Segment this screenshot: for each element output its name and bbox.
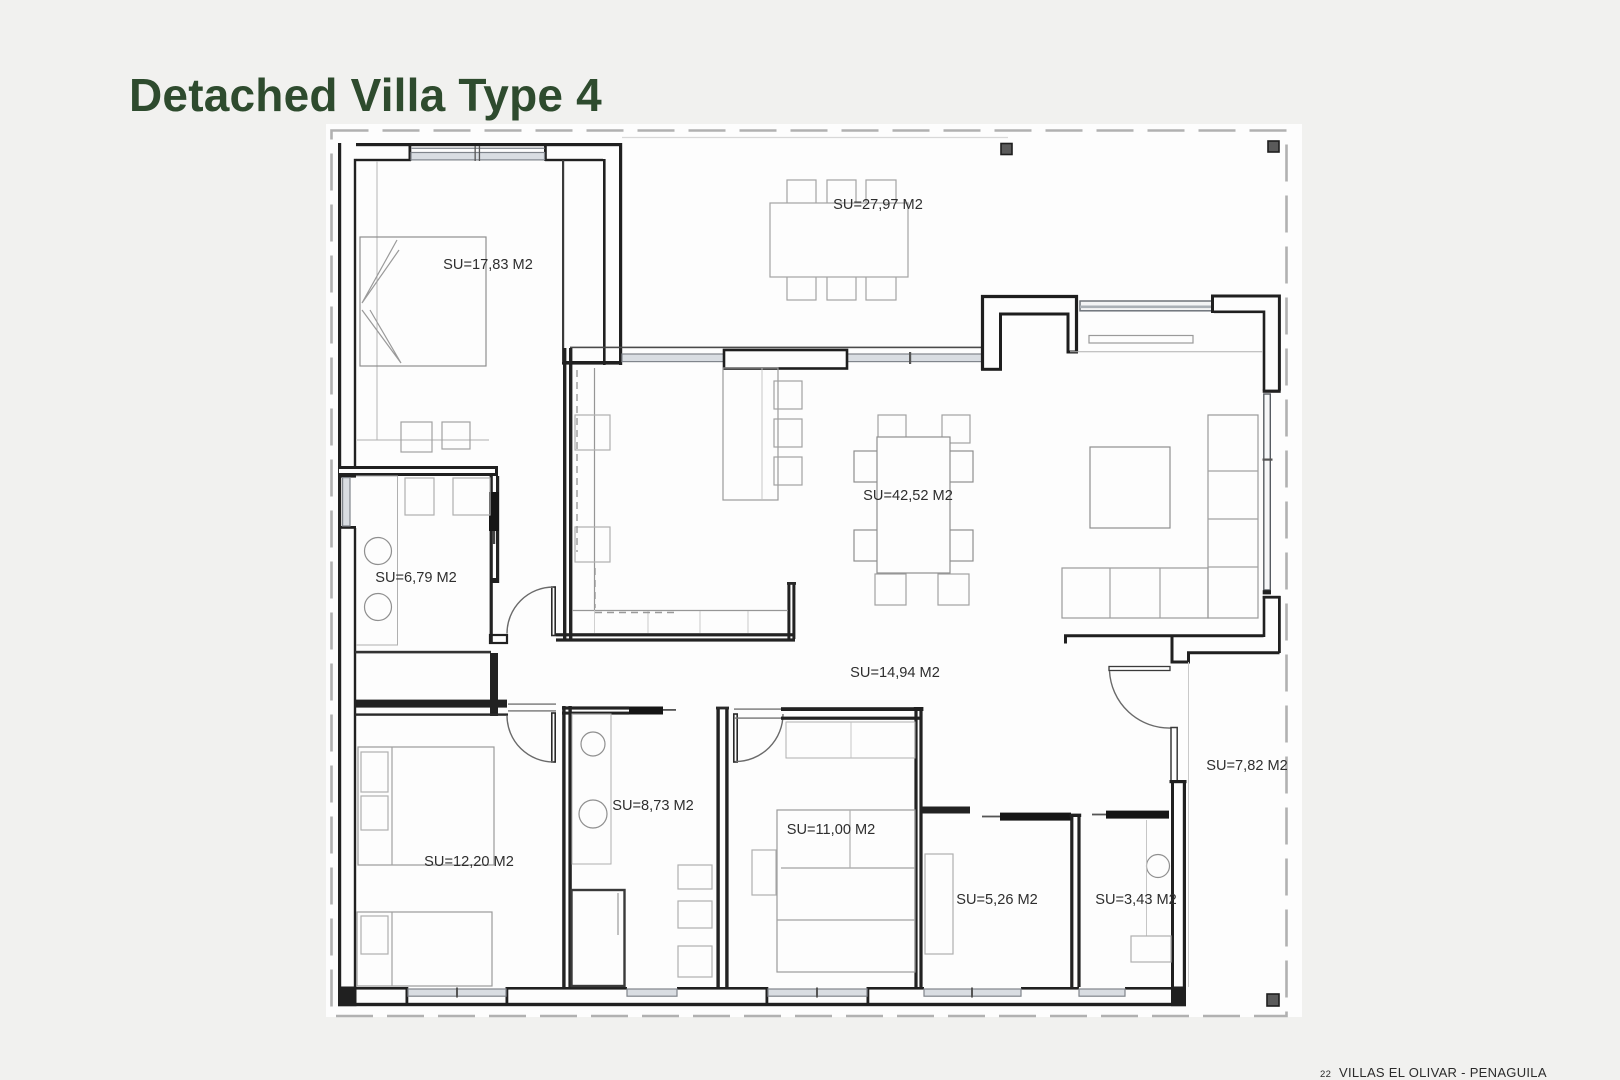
svg-text:SU=11,00 M2: SU=11,00 M2 [787, 822, 876, 838]
svg-text:SU=42,52 M2: SU=42,52 M2 [863, 488, 953, 504]
svg-text:SU=5,26 M2: SU=5,26 M2 [956, 892, 1038, 908]
svg-text:SU=8,73 M2: SU=8,73 M2 [612, 798, 694, 814]
svg-text:SU=12,20 M2: SU=12,20 M2 [424, 854, 514, 870]
svg-text:SU=27,97 M2: SU=27,97 M2 [833, 197, 923, 213]
svg-text:SU=3,43 M2: SU=3,43 M2 [1095, 892, 1177, 908]
svg-text:SU=17,83 M2: SU=17,83 M2 [443, 257, 533, 273]
svg-text:SU=7,82 M2: SU=7,82 M2 [1206, 758, 1288, 774]
svg-text:SU=14,94 M2: SU=14,94 M2 [850, 665, 940, 681]
svg-text:SU=6,79 M2: SU=6,79 M2 [375, 570, 457, 586]
